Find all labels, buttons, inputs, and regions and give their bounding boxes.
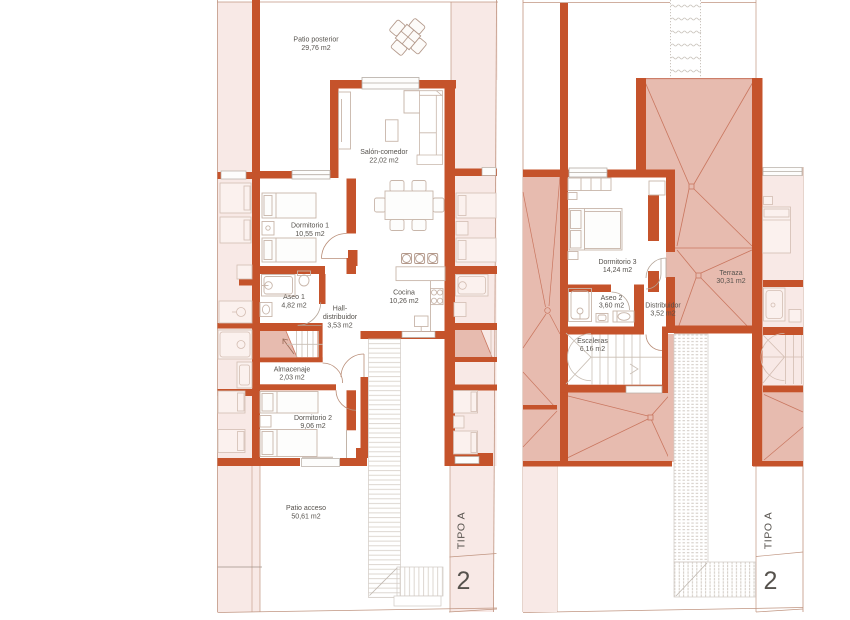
svg-text:3,60 m2: 3,60 m2	[599, 303, 624, 310]
svg-text:2: 2	[457, 567, 471, 595]
svg-text:Almacenaje: Almacenaje	[274, 367, 311, 374]
svg-text:TIPO A: TIPO A	[456, 512, 468, 549]
svg-text:Patio acceso: Patio acceso	[286, 505, 326, 512]
svg-text:2,03 m2: 2,03 m2	[279, 375, 304, 382]
svg-text:6,16 m2: 6,16 m2	[580, 346, 605, 353]
svg-text:10,26 m2: 10,26 m2	[389, 298, 418, 305]
svg-text:TIPO A: TIPO A	[763, 512, 775, 549]
svg-text:Terraza: Terraza	[719, 270, 742, 277]
svg-text:4,82 m2: 4,82 m2	[281, 303, 306, 310]
svg-text:50,61 m2: 50,61 m2	[291, 514, 320, 521]
svg-text:Escaleras: Escaleras	[577, 338, 608, 345]
svg-text:distribuidor: distribuidor	[323, 314, 358, 321]
svg-text:9,06 m2: 9,06 m2	[300, 423, 325, 430]
svg-text:3,52 m2: 3,52 m2	[650, 311, 675, 318]
svg-text:29,76 m2: 29,76 m2	[301, 45, 330, 52]
svg-text:Aseo 1: Aseo 1	[283, 294, 305, 301]
svg-text:22,02 m2: 22,02 m2	[369, 158, 398, 165]
svg-text:Cocina: Cocina	[393, 290, 415, 297]
svg-text:10,55 m2: 10,55 m2	[295, 231, 324, 238]
svg-text:Dormitorio 3: Dormitorio 3	[598, 259, 636, 266]
svg-text:14,24 m2: 14,24 m2	[603, 267, 632, 274]
svg-text:Aseo 2: Aseo 2	[601, 295, 623, 302]
svg-text:30,31 m2: 30,31 m2	[716, 278, 745, 285]
svg-text:2: 2	[764, 567, 778, 595]
svg-text:Dormitorio 2: Dormitorio 2	[294, 415, 332, 422]
svg-text:Dormitorio 1: Dormitorio 1	[291, 223, 329, 230]
svg-text:3,53 m2: 3,53 m2	[327, 323, 352, 330]
svg-text:Hall-: Hall-	[333, 306, 348, 313]
svg-text:Patio posterior: Patio posterior	[293, 37, 339, 44]
svg-text:Distribuidor: Distribuidor	[645, 303, 681, 310]
svg-text:Salón-comedor: Salón-comedor	[360, 149, 408, 156]
